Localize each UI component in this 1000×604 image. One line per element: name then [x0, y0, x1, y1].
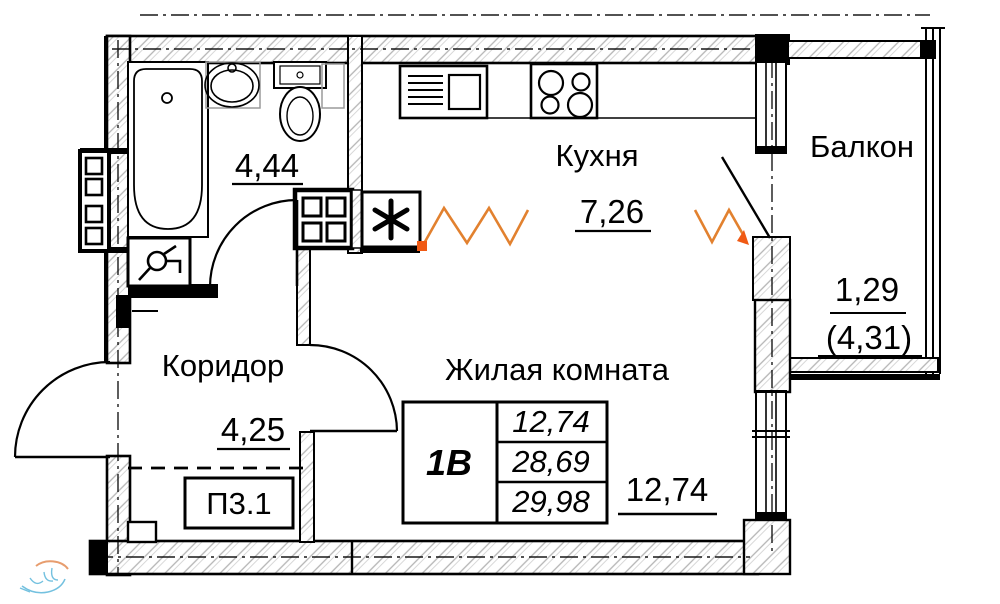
balcony-label: Балкон: [810, 129, 914, 164]
zigzag-balcony: [695, 210, 745, 242]
table-value-row1: 12,74: [512, 404, 590, 439]
living-room-label: Жилая комната: [445, 352, 670, 387]
balcony-area: 1,29: [835, 271, 899, 308]
floor-plan-drawing: 4,44 Кухня 7,26 Балкон 1,29 (4,31) Корид…: [0, 0, 1000, 604]
floor-plan-page: 4,44 Кухня 7,26 Балкон 1,29 (4,31) Корид…: [0, 0, 1000, 604]
washbasin-icon: [205, 62, 260, 108]
stove-burners-icon: [531, 64, 597, 118]
asterisk-vent-icon: [362, 192, 420, 247]
balcony-door-leaf: [722, 157, 770, 238]
table-value-row3: 29,98: [511, 484, 590, 519]
kitchen-label: Кухня: [556, 138, 639, 173]
vent-shaft-icon: [295, 190, 362, 248]
washing-machine-tap-icon: [128, 238, 190, 286]
zigzag-end-arrow: [737, 230, 749, 245]
apartment-info-table: 1В 12,74 28,69 29,98: [403, 402, 607, 523]
corridor-area: 4,25: [221, 411, 285, 448]
wall-right-window-lower: [752, 390, 790, 520]
zigzag-start-marker: [417, 241, 427, 251]
wall-balcony-bottom: [788, 358, 938, 372]
balcony-glazing: [921, 28, 945, 374]
wall-right-corner-block: [744, 520, 790, 574]
developer-logo-watermark: [20, 561, 68, 592]
wall-balcony-top: [788, 41, 934, 58]
wall-corridor-lower: [300, 432, 314, 542]
wall-right-window-upper: [755, 60, 787, 154]
kitchen-area: 7,26: [580, 193, 644, 230]
entrance-door-arc: [15, 362, 110, 457]
bathroom-area: 4,44: [235, 147, 299, 184]
bathroom-door-arc: [210, 200, 297, 287]
kitchen-sink-unit-icon: [400, 66, 487, 118]
toilet-icon: [274, 62, 344, 141]
table-value-row2: 28,69: [511, 444, 590, 479]
wall-corridor-upper: [297, 248, 310, 345]
wall-balcony-bottom-edge: [788, 374, 940, 380]
living-room-door-arc: [310, 345, 397, 431]
living-room-area: 12,74: [626, 471, 709, 508]
bathtub-icon: [128, 62, 208, 237]
zigzag-kitchen: [422, 208, 528, 247]
balcony-area-total: (4,31): [826, 319, 912, 356]
corridor-label: Коридор: [162, 348, 284, 383]
unit-label: П3.1: [206, 486, 271, 521]
unit-label-box: П3.1: [185, 478, 293, 528]
corner-nook: [128, 522, 156, 542]
apartment-type: 1В: [426, 442, 472, 483]
kitchen-fixtures: [400, 64, 755, 118]
